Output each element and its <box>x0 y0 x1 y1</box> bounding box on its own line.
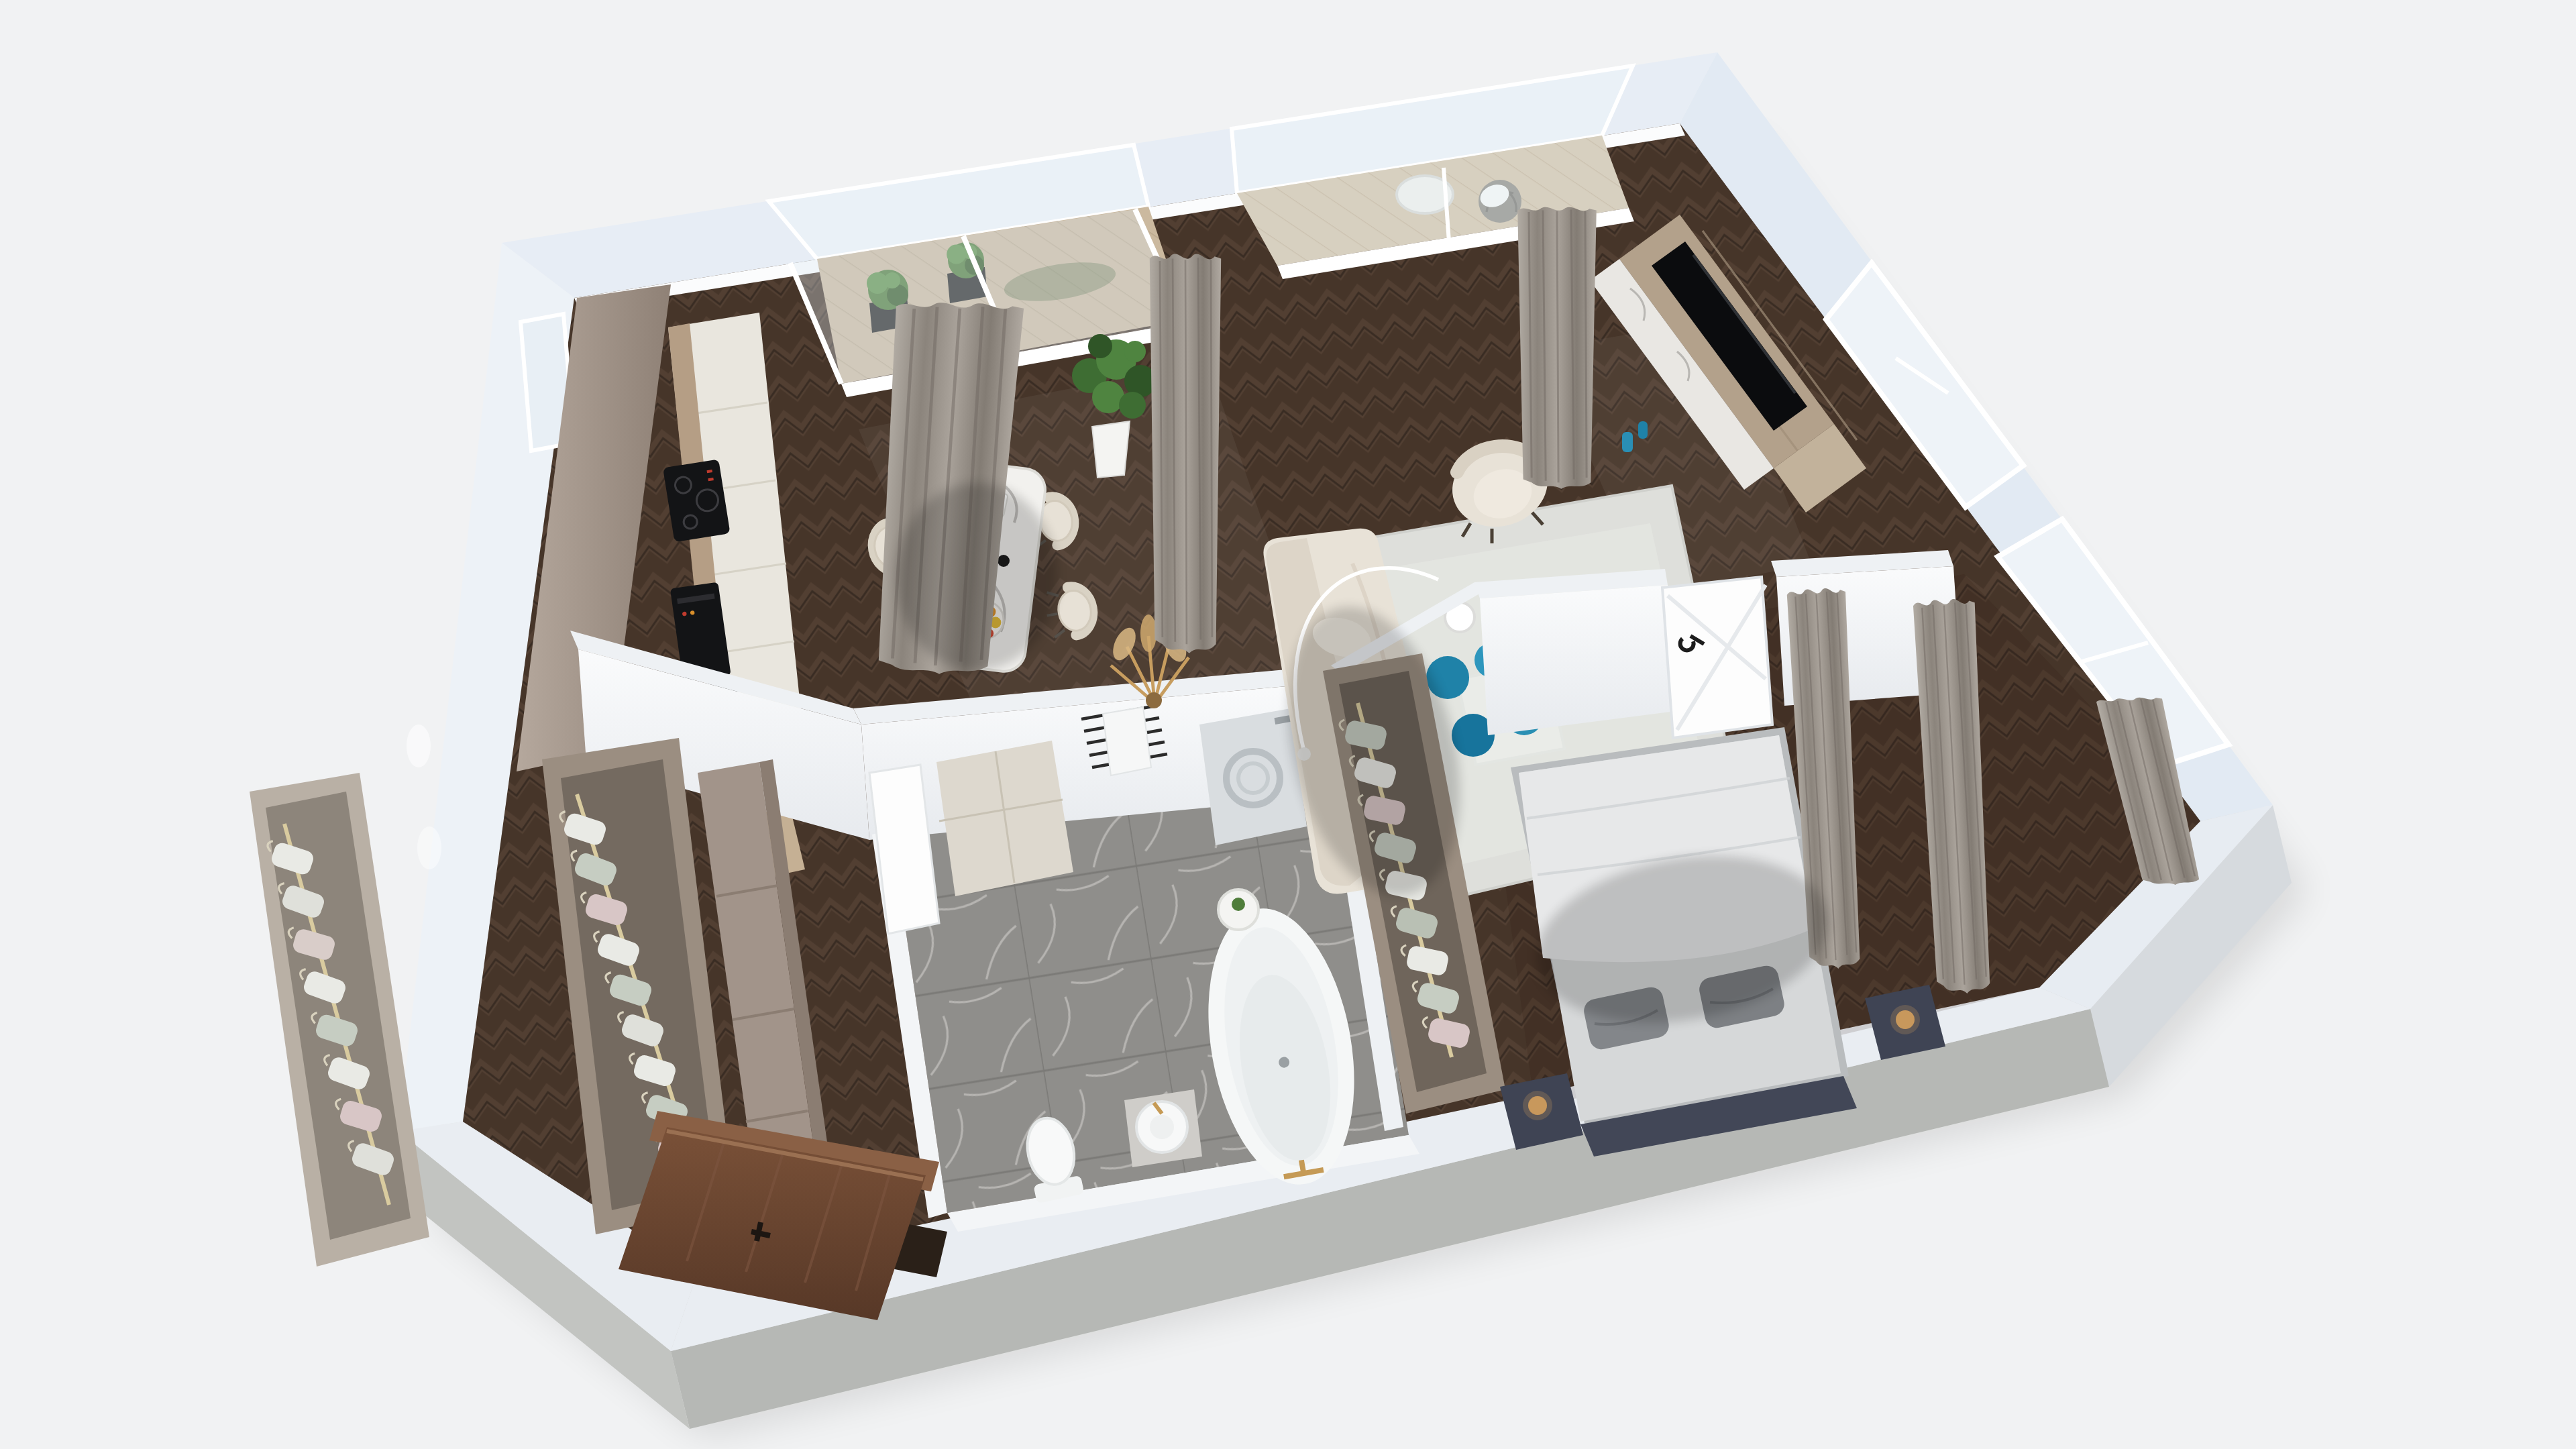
small-plant <box>1232 898 1245 911</box>
pampas-vase <box>1146 692 1162 708</box>
induction-cooktop <box>663 459 730 542</box>
white-planter <box>1092 421 1130 478</box>
teal-vase <box>1622 432 1633 452</box>
render-viewport <box>0 0 2576 1449</box>
curtain <box>1517 207 1597 489</box>
white-towel <box>1103 707 1151 775</box>
wall-spotlight-glow <box>407 724 431 767</box>
curtain <box>1150 254 1221 653</box>
divider-wall-face-1 <box>1480 585 1676 735</box>
wall-spotlight-glow <box>417 826 441 869</box>
floor-plan-render <box>0 0 2576 1449</box>
basin-sink <box>1124 1089 1202 1167</box>
teal-vase <box>1638 421 1648 439</box>
side-table <box>1218 890 1258 930</box>
bedroom-door-open <box>1662 577 1772 738</box>
